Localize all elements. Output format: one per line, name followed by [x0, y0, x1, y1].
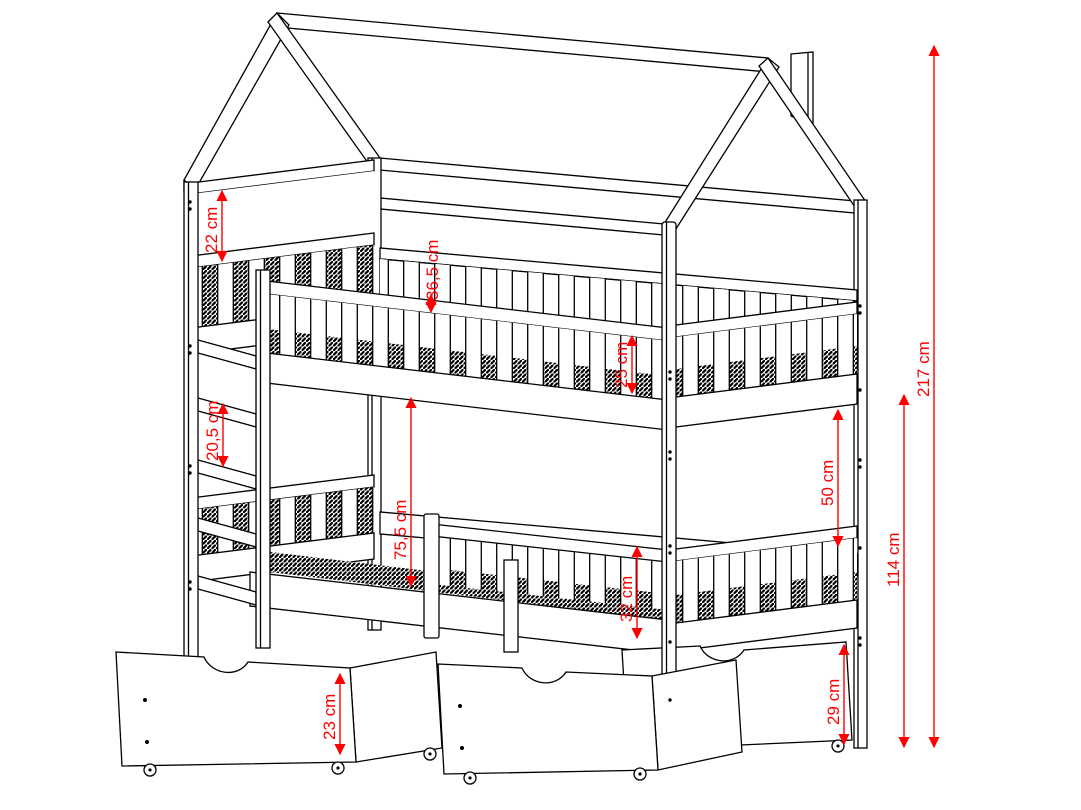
dim-label-217cm: 217 cm	[914, 341, 933, 397]
dim-label-50cm: 50 cm	[818, 460, 837, 506]
dim-label-32cm: 32 cm	[617, 576, 636, 622]
dimension-space-between-bunks: 75,5 cm	[391, 398, 411, 586]
head-gable-right-rafter	[268, 13, 380, 167]
roof-ridge-beam	[277, 13, 768, 72]
drawing-canvas: 22 cm 36,5 cm 25 cm 20,5 cm 75,5 cm 50 c…	[0, 0, 1081, 810]
ladder-rung	[198, 460, 256, 489]
drawer-middle	[438, 660, 742, 784]
dim-label-23cm: 23 cm	[320, 694, 339, 740]
lower-guardrail-mid-post	[504, 560, 518, 652]
dimension-upper-bunk-height: 114 cm	[884, 395, 904, 747]
dim-label-22cm: 22 cm	[202, 207, 221, 253]
head-near-post	[184, 182, 198, 658]
dim-label-25cm: 25 cm	[612, 342, 631, 388]
dimension-upper-guardrail-height: 25 cm	[612, 336, 632, 393]
dimension-ladder-rung-spacing: 20,5 cm	[203, 401, 223, 466]
dim-label-29cm: 29 cm	[824, 679, 843, 725]
foot-gable-left-rafter	[664, 58, 779, 232]
dim-label-36-5cm: 36,5 cm	[423, 240, 442, 300]
ladder-rung	[198, 576, 256, 605]
dimension-total-height: 217 cm	[914, 46, 934, 747]
dim-label-20-5cm: 20,5 cm	[203, 401, 222, 461]
drawer-left	[116, 652, 442, 776]
head-gable-left-rafter	[184, 13, 289, 190]
bunk-bed-technical-drawing: 22 cm 36,5 cm 25 cm 20,5 cm 75,5 cm 50 c…	[0, 0, 1081, 810]
dim-label-75-5cm: 75,5 cm	[391, 500, 410, 560]
lower-guardrail-end-post	[424, 514, 439, 638]
dimension-clearance-under-upper-bunk: 50 cm	[818, 410, 838, 546]
dim-label-114cm: 114 cm	[884, 533, 903, 588]
ladder-stile-post	[256, 270, 270, 648]
foot-far-post	[854, 200, 867, 748]
